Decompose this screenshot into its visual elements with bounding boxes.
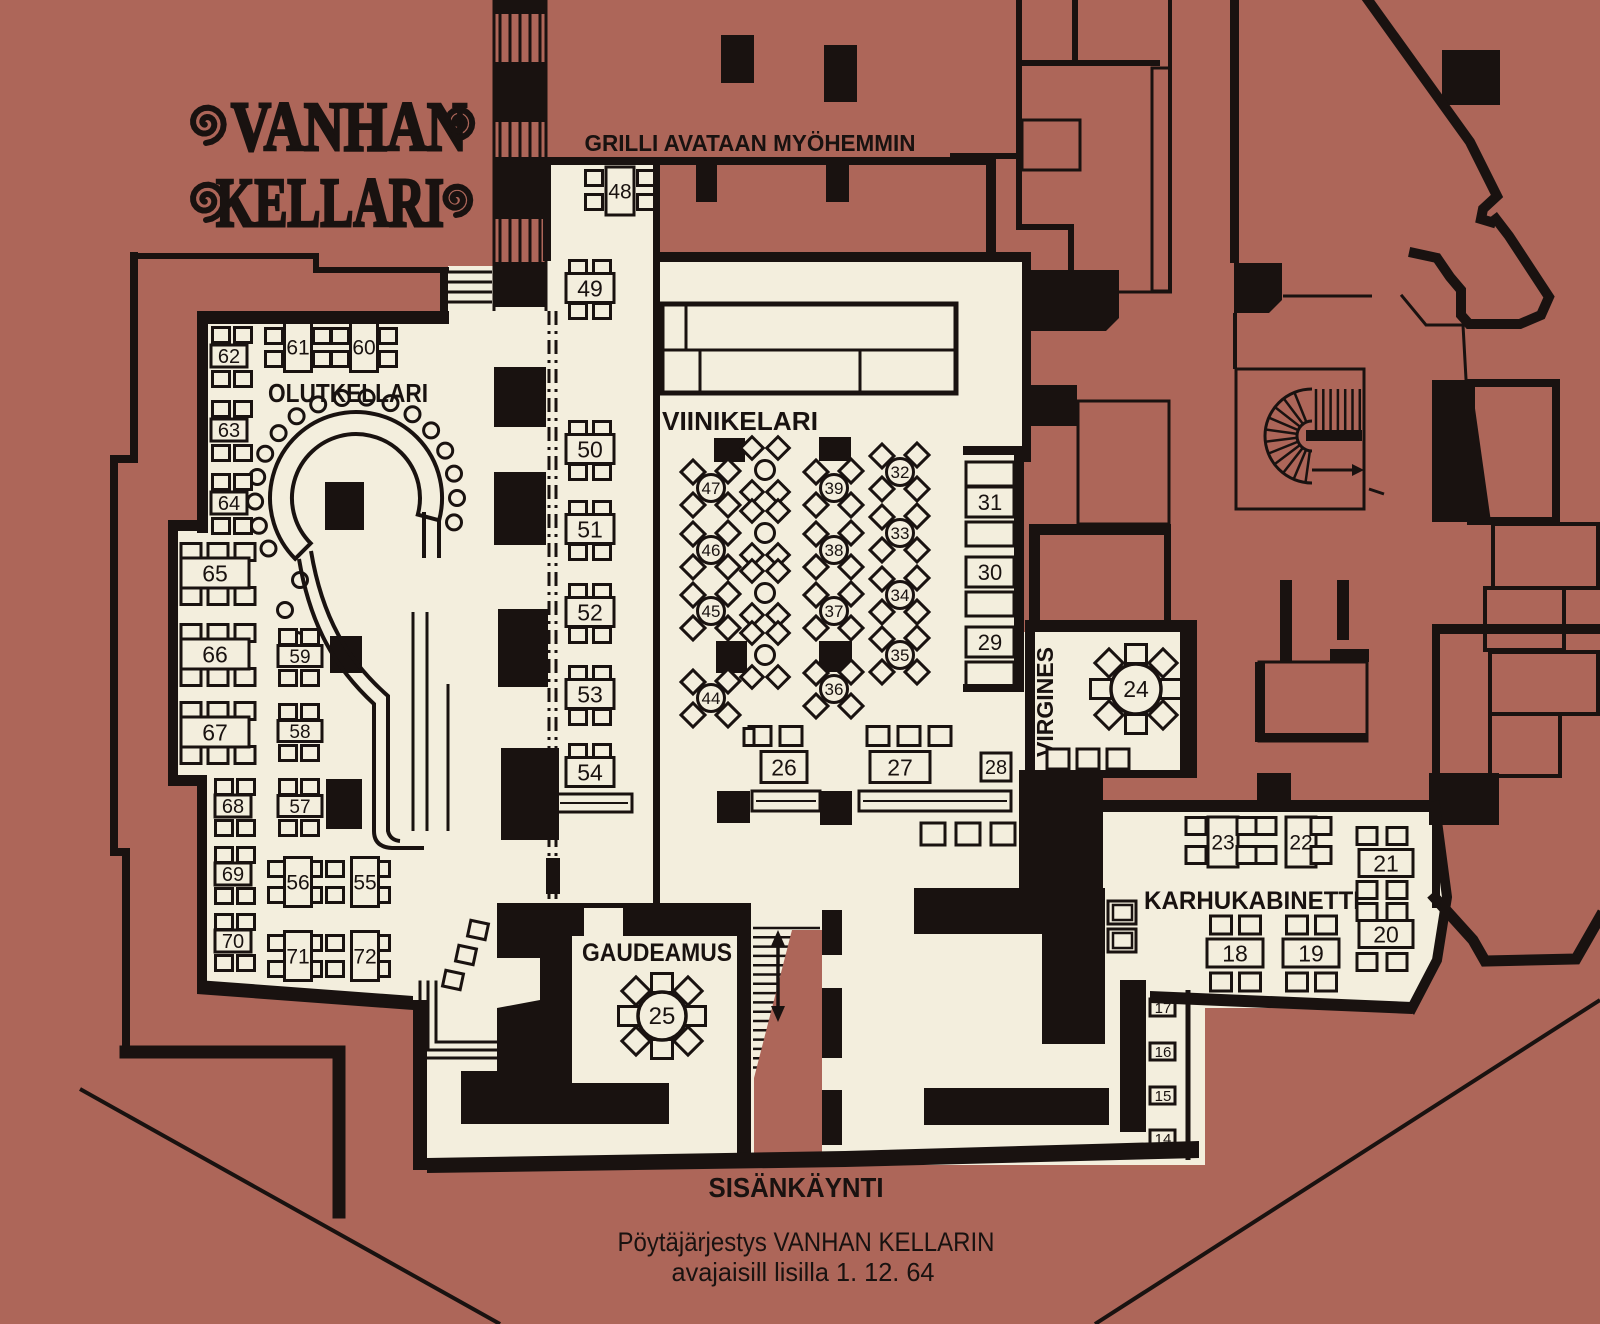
svg-text:66: 66 bbox=[202, 641, 228, 667]
svg-text:GAUDEAMUS: GAUDEAMUS bbox=[582, 939, 732, 967]
svg-text:49: 49 bbox=[577, 275, 603, 301]
svg-text:VANHAN: VANHAN bbox=[231, 89, 467, 166]
svg-text:46: 46 bbox=[702, 541, 721, 560]
svg-text:50: 50 bbox=[577, 436, 603, 462]
svg-text:72: 72 bbox=[353, 946, 376, 969]
svg-text:37: 37 bbox=[825, 602, 844, 621]
svg-text:56: 56 bbox=[286, 872, 309, 895]
svg-text:38: 38 bbox=[825, 541, 844, 560]
svg-text:62: 62 bbox=[218, 346, 240, 368]
svg-text:51: 51 bbox=[577, 516, 603, 542]
svg-text:KELLARI: KELLARI bbox=[216, 165, 444, 242]
svg-text:17: 17 bbox=[1155, 1000, 1172, 1017]
svg-text:47: 47 bbox=[702, 479, 721, 498]
svg-text:OLUTKELLARI: OLUTKELLARI bbox=[268, 378, 428, 408]
svg-text:34: 34 bbox=[891, 586, 910, 605]
svg-text:48: 48 bbox=[608, 181, 631, 204]
svg-text:18: 18 bbox=[1222, 940, 1248, 966]
svg-text:60: 60 bbox=[352, 337, 375, 360]
svg-text:30: 30 bbox=[978, 560, 1002, 585]
svg-text:23: 23 bbox=[1211, 832, 1234, 855]
svg-text:28: 28 bbox=[985, 757, 1007, 779]
svg-text:avajaisill lisilla 1. 12. 64: avajaisill lisilla 1. 12. 64 bbox=[672, 1257, 935, 1287]
svg-text:15: 15 bbox=[1155, 1088, 1172, 1105]
svg-text:14: 14 bbox=[1155, 1131, 1172, 1148]
svg-text:39: 39 bbox=[825, 479, 844, 498]
svg-text:45: 45 bbox=[702, 602, 721, 621]
svg-text:21: 21 bbox=[1373, 850, 1399, 876]
svg-text:58: 58 bbox=[289, 722, 310, 743]
svg-text:52: 52 bbox=[577, 599, 603, 625]
svg-text:70: 70 bbox=[222, 931, 244, 953]
svg-text:VIRGINES: VIRGINES bbox=[1032, 647, 1058, 757]
svg-text:53: 53 bbox=[577, 681, 603, 707]
svg-text:KARHUKABINETTI: KARHUKABINETTI bbox=[1144, 887, 1360, 915]
svg-text:VIINIKELARI: VIINIKELARI bbox=[662, 406, 818, 436]
svg-text:33: 33 bbox=[891, 524, 910, 543]
svg-text:Pöytäjärjestys VANHAN KELLARI: Pöytäjärjestys VANHAN KELLARIN bbox=[618, 1227, 995, 1257]
svg-text:GRILLI AVATAAN MYÖHEMMIN: GRILLI AVATAAN MYÖHEMMIN bbox=[585, 130, 916, 156]
svg-text:63: 63 bbox=[218, 420, 240, 442]
svg-text:44: 44 bbox=[702, 689, 721, 708]
svg-text:67: 67 bbox=[202, 719, 228, 745]
svg-text:35: 35 bbox=[891, 646, 910, 665]
svg-text:36: 36 bbox=[825, 680, 844, 699]
svg-text:29: 29 bbox=[978, 630, 1002, 655]
svg-text:55: 55 bbox=[353, 872, 376, 895]
svg-text:54: 54 bbox=[577, 759, 603, 785]
svg-text:26: 26 bbox=[771, 754, 797, 780]
svg-text:64: 64 bbox=[218, 493, 240, 515]
svg-text:59: 59 bbox=[289, 647, 310, 668]
svg-text:31: 31 bbox=[978, 490, 1002, 515]
svg-text:61: 61 bbox=[286, 337, 309, 360]
svg-text:24: 24 bbox=[1123, 676, 1149, 702]
svg-text:71: 71 bbox=[286, 946, 309, 969]
svg-text:16: 16 bbox=[1155, 1044, 1172, 1061]
svg-text:19: 19 bbox=[1298, 940, 1324, 966]
svg-text:27: 27 bbox=[887, 754, 913, 780]
svg-text:SISÄNKÄYNTI: SISÄNKÄYNTI bbox=[709, 1172, 884, 1203]
svg-text:65: 65 bbox=[202, 560, 228, 586]
svg-text:57: 57 bbox=[289, 797, 310, 818]
svg-text:20: 20 bbox=[1373, 921, 1399, 947]
svg-text:22: 22 bbox=[1289, 832, 1312, 855]
svg-text:25: 25 bbox=[649, 1003, 676, 1030]
svg-text:68: 68 bbox=[222, 796, 244, 818]
svg-text:69: 69 bbox=[222, 864, 244, 886]
svg-text:32: 32 bbox=[891, 463, 910, 482]
